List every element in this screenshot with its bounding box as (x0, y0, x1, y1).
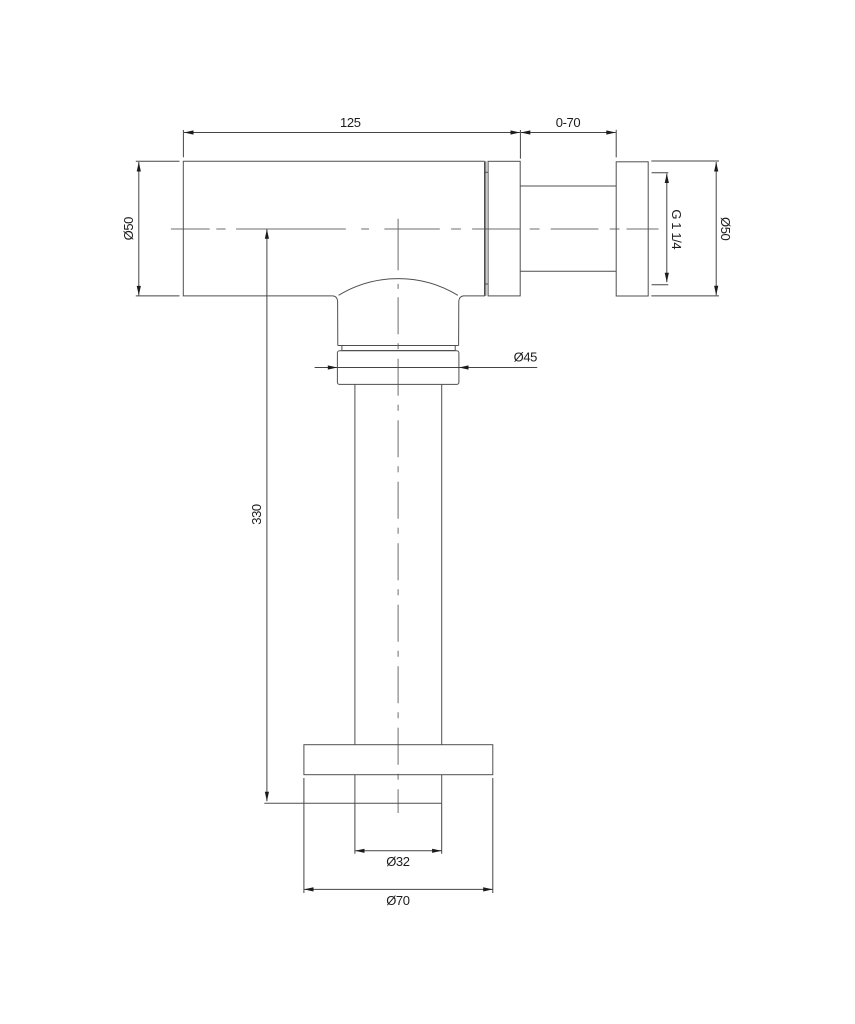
svg-text:125: 125 (340, 115, 361, 130)
svg-text:330: 330 (249, 504, 264, 525)
svg-text:0-70: 0-70 (556, 115, 581, 130)
svg-text:Ø50: Ø50 (718, 217, 733, 241)
svg-text:Ø32: Ø32 (386, 854, 410, 869)
svg-text:G 1 1/4: G 1 1/4 (669, 209, 684, 249)
svg-text:Ø45: Ø45 (514, 350, 538, 365)
svg-text:Ø50: Ø50 (121, 217, 136, 241)
svg-text:Ø70: Ø70 (386, 893, 410, 908)
